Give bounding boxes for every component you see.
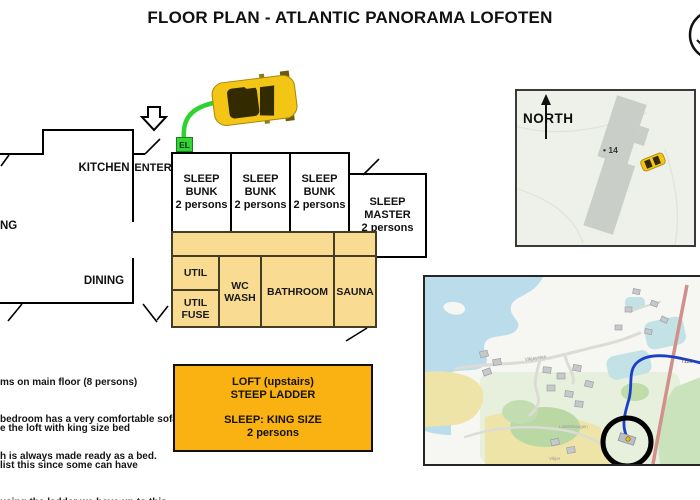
destination-dot: [626, 437, 630, 441]
yellow-field-left: [425, 371, 483, 427]
site-car-icon: [640, 152, 667, 172]
water-area: [425, 277, 543, 379]
room-wc-wash: WC WASH: [220, 257, 262, 326]
room-bathroom: BATHROOM: [262, 257, 335, 326]
room-sleep-bunk-2: SLEEP BUNK 2 persons: [230, 152, 291, 233]
place-upper-label: Latsirshaugen: [559, 424, 588, 429]
room-enter-label: ENTER: [133, 162, 173, 174]
room-util: UTIL: [173, 257, 218, 291]
room-util-fuse: UTIL FUSE: [173, 291, 218, 326]
north-label: NORTH: [523, 111, 574, 126]
route-map-graphics: Vikjaveien 7116 Latsirshaugen Vikjer: [425, 277, 700, 464]
room-sleep-bunk-1: SLEEP BUNK 2 persons: [171, 152, 232, 233]
room-sleep-bunk-3: SLEEP BUNK 2 persons: [289, 152, 350, 233]
room-sauna: SAUNA: [335, 257, 375, 326]
loft-info-box: LOFT (upstairs) STEEP LADDER SLEEP: KING…: [173, 364, 373, 452]
car-icon: [210, 70, 298, 130]
hallway-divider: [333, 233, 335, 255]
notes-block-2: e the loft with king size bed list this …: [0, 399, 167, 500]
green-patch-3: [621, 383, 649, 401]
el-charger-badge: EL: [176, 137, 193, 152]
room-dining-label: DINING: [58, 275, 150, 287]
route-map-inset: Vikjaveien 7116 Latsirshaugen Vikjer: [423, 275, 700, 466]
ev-cable-line: [184, 103, 213, 139]
wetroom-block: UTIL UTIL FUSE WC WASH BATHROOM SAUNA: [171, 231, 377, 328]
route-number-label: 7116: [681, 359, 692, 365]
wetroom-row: UTIL UTIL FUSE WC WASH BATHROOM SAUNA: [173, 255, 375, 326]
hallway-strip: [173, 233, 375, 255]
page-title: FLOOR PLAN - ATLANTIC PANORAMA LOFOTEN: [0, 8, 700, 28]
site-plan-inset: NORTH • 14: [515, 89, 696, 247]
room-living-label-cut: NG: [0, 220, 17, 232]
down-arrow-icon: [142, 107, 166, 130]
place-lower-label: Vikjer: [549, 456, 561, 461]
house-number-label: • 14: [603, 145, 618, 155]
floor-plan-page: FLOOR PLAN - ATLANTIC PANORAMA LOFOTEN: [0, 0, 700, 500]
